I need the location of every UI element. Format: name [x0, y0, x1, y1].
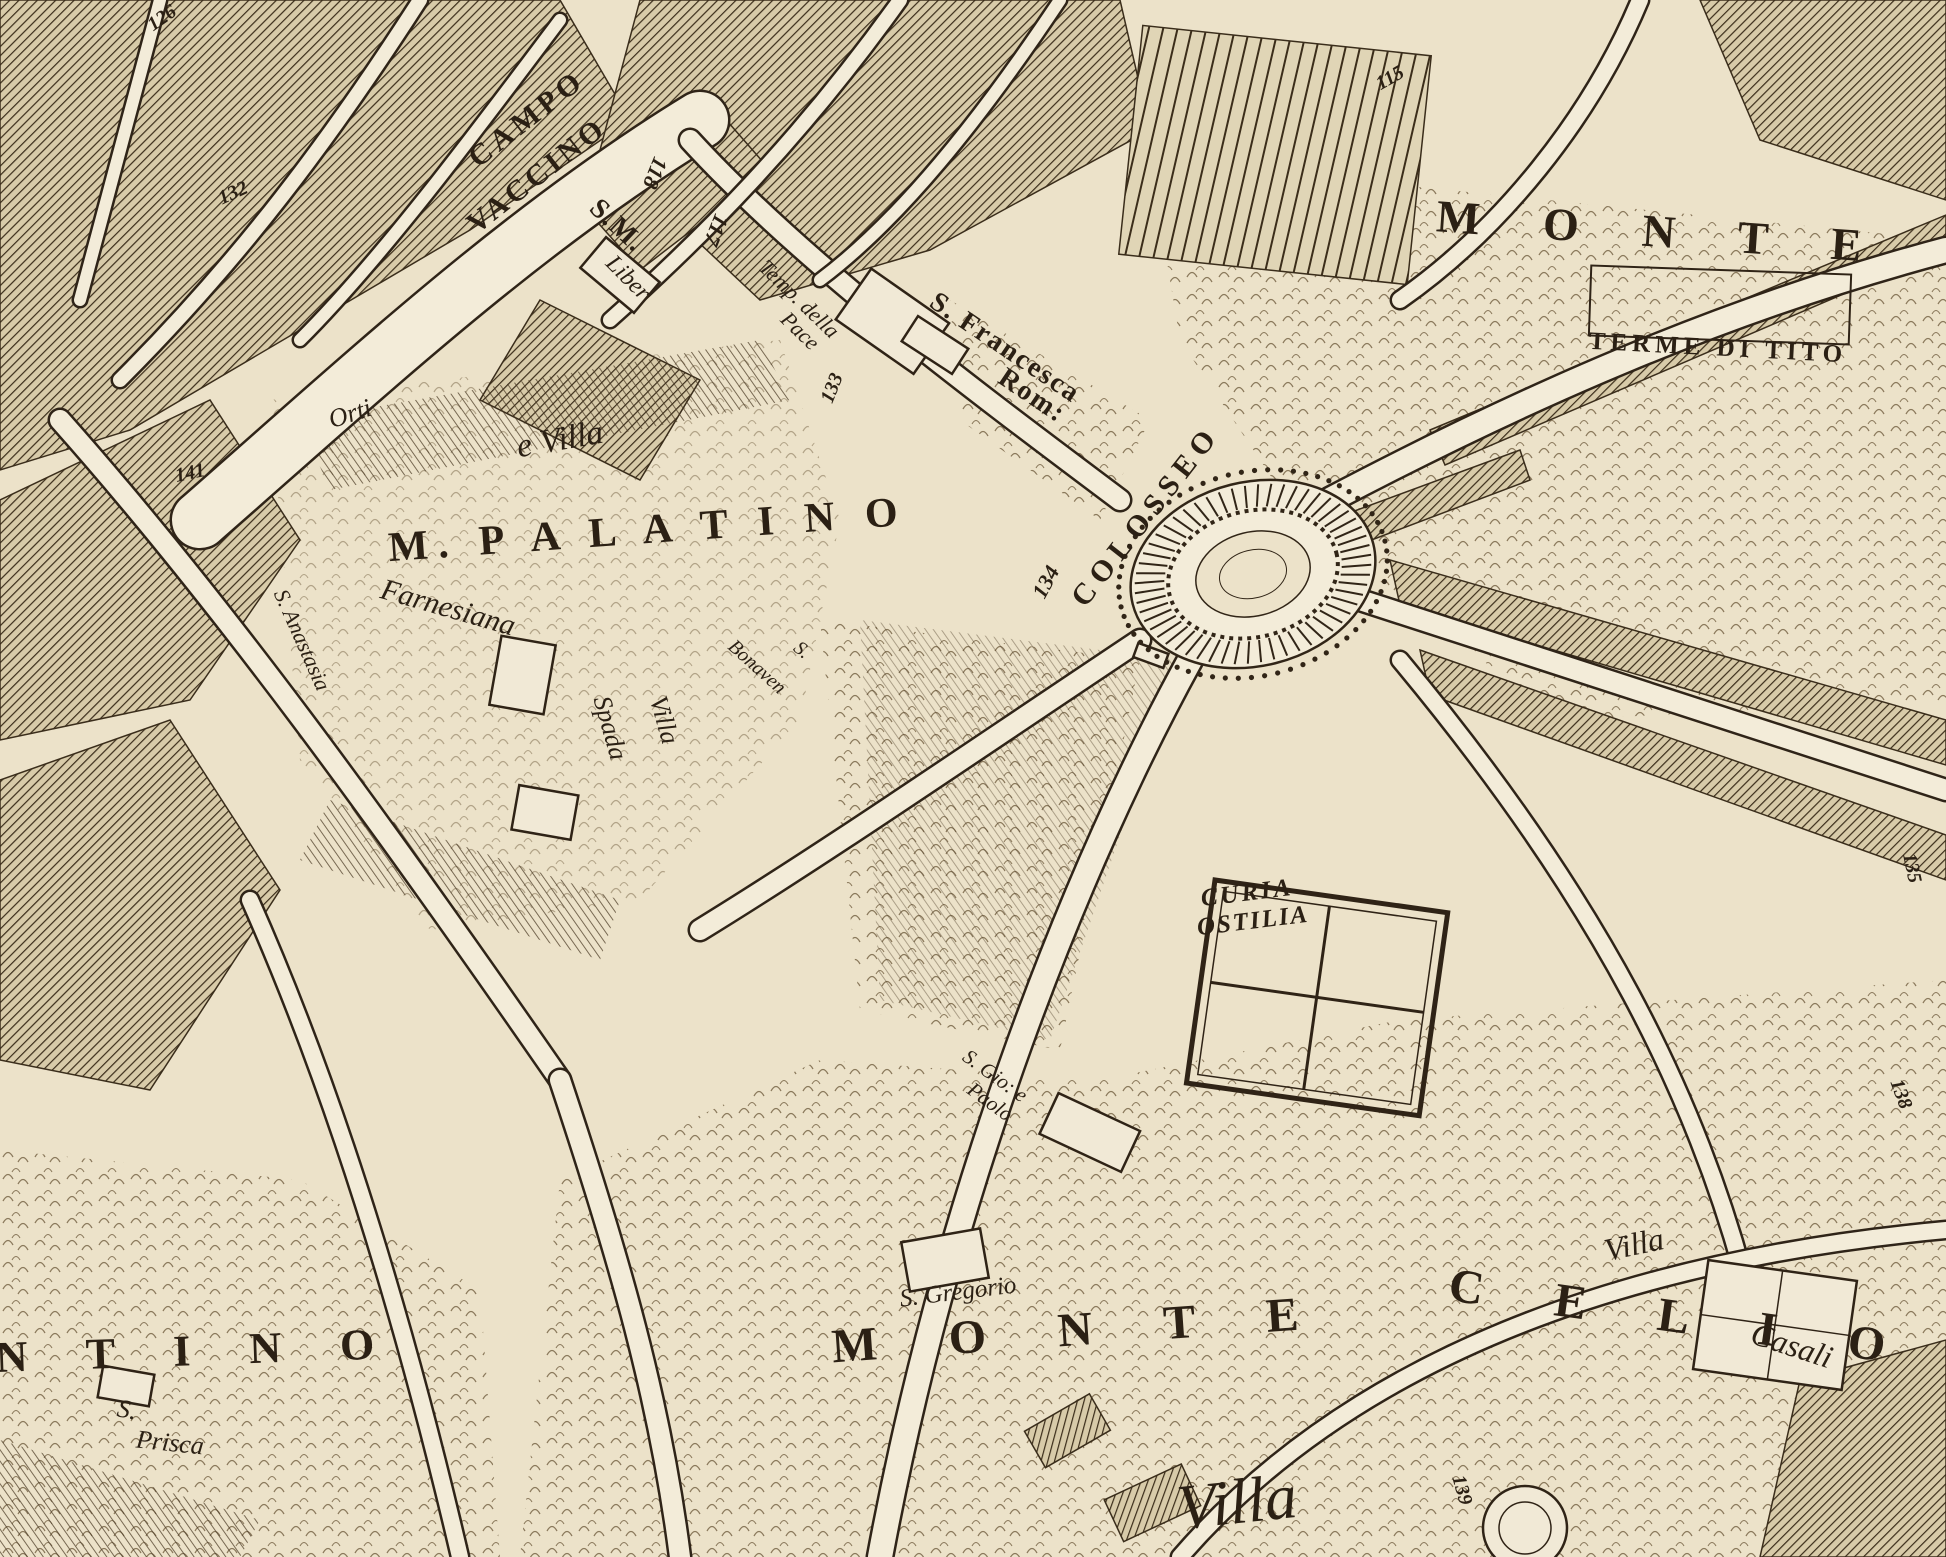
round-building	[1483, 1486, 1567, 1557]
garden-rows-plot	[1119, 25, 1431, 284]
map-engraving	[0, 0, 1946, 1557]
engraved-map-of-rome: CAMPOVACCINO126132141S.M.Liber118117Temp…	[0, 0, 1946, 1557]
villa-spada-buildings	[489, 636, 555, 714]
palatine-building	[511, 785, 578, 840]
villa-casali-quad	[1693, 1260, 1857, 1390]
